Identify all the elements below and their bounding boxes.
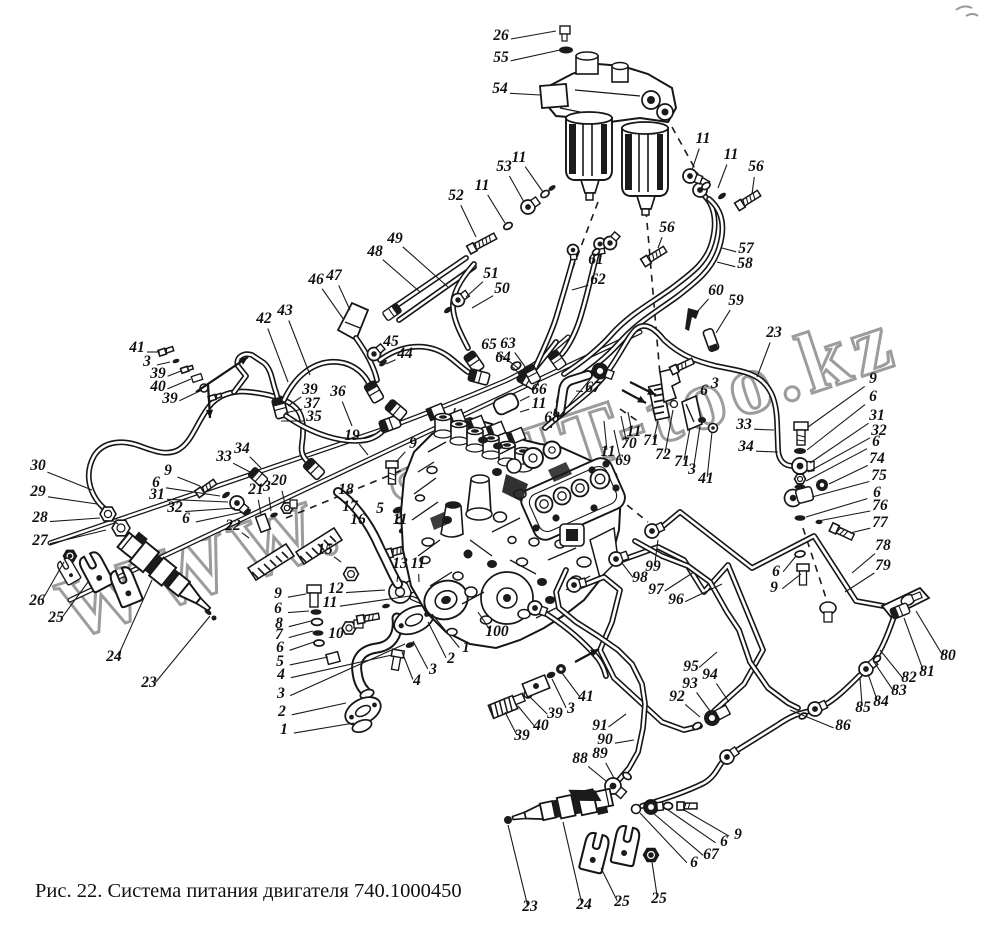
svg-text:47: 47 bbox=[325, 267, 343, 284]
svg-text:24: 24 bbox=[575, 896, 592, 913]
svg-text:68: 68 bbox=[544, 409, 560, 426]
svg-text:69: 69 bbox=[615, 452, 631, 469]
svg-text:3: 3 bbox=[428, 661, 437, 678]
svg-text:81: 81 bbox=[919, 663, 935, 680]
svg-text:25: 25 bbox=[47, 609, 64, 626]
svg-text:29: 29 bbox=[29, 483, 46, 500]
svg-text:11: 11 bbox=[601, 443, 616, 460]
svg-text:52: 52 bbox=[448, 187, 464, 204]
svg-text:24: 24 bbox=[105, 648, 122, 665]
svg-text:59: 59 bbox=[728, 292, 744, 309]
svg-text:100: 100 bbox=[485, 623, 509, 640]
svg-text:43: 43 bbox=[276, 302, 293, 319]
svg-text:58: 58 bbox=[737, 255, 753, 272]
svg-text:16: 16 bbox=[350, 511, 366, 528]
svg-text:15: 15 bbox=[317, 541, 333, 558]
svg-text:19: 19 bbox=[344, 427, 360, 444]
svg-text:88: 88 bbox=[572, 750, 588, 767]
svg-text:34: 34 bbox=[233, 440, 250, 457]
svg-text:4: 4 bbox=[276, 666, 285, 683]
svg-text:84: 84 bbox=[873, 693, 889, 710]
svg-text:6: 6 bbox=[869, 388, 877, 405]
svg-text:33: 33 bbox=[215, 448, 232, 465]
svg-text:30: 30 bbox=[29, 457, 46, 474]
svg-text:56: 56 bbox=[748, 158, 764, 175]
svg-text:79: 79 bbox=[875, 557, 891, 574]
svg-text:83: 83 bbox=[891, 682, 907, 699]
svg-text:9: 9 bbox=[869, 370, 877, 387]
svg-text:3: 3 bbox=[687, 461, 696, 478]
svg-text:23: 23 bbox=[521, 898, 538, 915]
svg-text:34: 34 bbox=[737, 438, 754, 455]
svg-text:78: 78 bbox=[875, 537, 891, 554]
svg-text:9: 9 bbox=[734, 826, 742, 843]
svg-text:1: 1 bbox=[280, 721, 288, 738]
svg-text:WWW.: WWW. bbox=[46, 475, 353, 658]
svg-text:53: 53 bbox=[496, 158, 512, 175]
svg-text:9: 9 bbox=[770, 579, 778, 596]
svg-text:77: 77 bbox=[872, 514, 889, 531]
svg-text:95: 95 bbox=[683, 658, 699, 675]
svg-text:25: 25 bbox=[650, 890, 667, 907]
svg-text:33: 33 bbox=[735, 416, 752, 433]
svg-text:10: 10 bbox=[328, 625, 344, 642]
svg-text:93: 93 bbox=[682, 675, 698, 692]
svg-text:21: 21 bbox=[247, 481, 264, 498]
svg-text:67: 67 bbox=[585, 379, 602, 396]
svg-text:96: 96 bbox=[668, 591, 684, 608]
svg-text:56: 56 bbox=[659, 219, 675, 236]
svg-text:64: 64 bbox=[495, 349, 511, 366]
svg-text:2: 2 bbox=[277, 703, 286, 720]
svg-text:4: 4 bbox=[412, 672, 421, 689]
svg-text:18: 18 bbox=[338, 481, 354, 498]
svg-text:97: 97 bbox=[648, 581, 665, 598]
svg-text:39: 39 bbox=[513, 727, 530, 744]
svg-text:9: 9 bbox=[409, 435, 417, 452]
svg-text:32: 32 bbox=[166, 499, 183, 516]
svg-text:42: 42 bbox=[255, 310, 272, 327]
svg-text:11: 11 bbox=[323, 594, 338, 611]
svg-text:75: 75 bbox=[871, 467, 887, 484]
svg-text:6: 6 bbox=[772, 563, 780, 580]
svg-text:54: 54 bbox=[492, 80, 508, 97]
svg-text:48: 48 bbox=[366, 243, 383, 260]
svg-text:1: 1 bbox=[462, 639, 470, 656]
svg-text:11: 11 bbox=[724, 146, 739, 163]
svg-text:28: 28 bbox=[31, 509, 48, 526]
svg-text:13: 13 bbox=[392, 555, 408, 572]
svg-text:50: 50 bbox=[494, 280, 510, 297]
svg-text:22: 22 bbox=[224, 517, 241, 534]
svg-text:80: 80 bbox=[940, 647, 956, 664]
svg-text:85: 85 bbox=[855, 699, 871, 716]
svg-text:41: 41 bbox=[697, 470, 714, 487]
svg-text:31: 31 bbox=[148, 486, 165, 503]
svg-text:20: 20 bbox=[270, 472, 287, 489]
svg-text:6: 6 bbox=[720, 833, 728, 850]
svg-text:26: 26 bbox=[28, 592, 45, 609]
svg-text:27: 27 bbox=[31, 532, 49, 549]
svg-text:6: 6 bbox=[700, 382, 708, 399]
svg-text:39: 39 bbox=[161, 390, 178, 407]
svg-text:98: 98 bbox=[632, 569, 648, 586]
svg-text:11: 11 bbox=[475, 177, 490, 194]
svg-text:70: 70 bbox=[621, 435, 637, 452]
svg-text:9: 9 bbox=[164, 462, 172, 479]
svg-text:62: 62 bbox=[590, 271, 606, 288]
svg-text:23: 23 bbox=[140, 674, 157, 691]
svg-text:3: 3 bbox=[276, 685, 285, 702]
svg-text:89: 89 bbox=[592, 745, 608, 762]
svg-text:6: 6 bbox=[182, 510, 190, 527]
svg-text:23: 23 bbox=[765, 324, 782, 341]
svg-text:6: 6 bbox=[872, 433, 880, 450]
svg-text:3: 3 bbox=[566, 700, 575, 717]
svg-text:11: 11 bbox=[696, 130, 711, 147]
svg-text:60: 60 bbox=[708, 282, 724, 299]
svg-text:74: 74 bbox=[869, 450, 885, 467]
svg-text:6: 6 bbox=[690, 854, 698, 871]
svg-text:5: 5 bbox=[376, 500, 384, 517]
svg-text:86: 86 bbox=[835, 717, 851, 734]
svg-text:25: 25 bbox=[613, 893, 630, 910]
svg-text:36: 36 bbox=[329, 383, 346, 400]
svg-text:35: 35 bbox=[305, 408, 322, 425]
svg-text:11: 11 bbox=[512, 149, 527, 166]
svg-text:67: 67 bbox=[703, 846, 720, 863]
svg-text:39: 39 bbox=[546, 705, 563, 722]
svg-text:11: 11 bbox=[411, 555, 426, 572]
svg-text:94: 94 bbox=[702, 666, 718, 683]
svg-text:76: 76 bbox=[872, 497, 888, 514]
svg-text:49: 49 bbox=[386, 230, 403, 247]
svg-text:61: 61 bbox=[588, 251, 604, 268]
svg-text:11: 11 bbox=[393, 511, 408, 528]
svg-text:44: 44 bbox=[396, 345, 413, 362]
svg-text:2: 2 bbox=[446, 650, 455, 667]
svg-text:3: 3 bbox=[262, 478, 271, 495]
svg-text:55: 55 bbox=[493, 49, 509, 66]
svg-text:41: 41 bbox=[577, 688, 594, 705]
svg-text:3: 3 bbox=[710, 375, 719, 392]
svg-text:72: 72 bbox=[655, 446, 671, 463]
svg-text:46: 46 bbox=[307, 271, 324, 288]
svg-text:26: 26 bbox=[492, 27, 509, 44]
svg-text:Рис. 22. Система питания двига: Рис. 22. Система питания двигателя 740.1… bbox=[35, 880, 462, 902]
